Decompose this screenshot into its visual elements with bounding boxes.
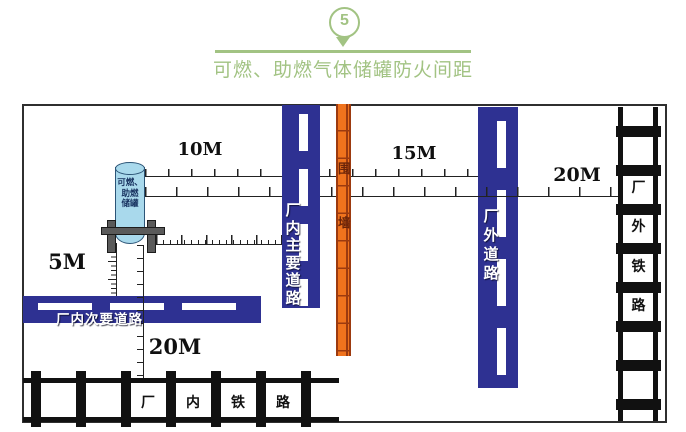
diagram-canvas: 5 可燃、助燃气体储罐防火间距 10M 15M 20M 5M 20M 可燃、 助… <box>0 0 686 432</box>
ruler-h2-ticks <box>145 187 618 196</box>
ruler-fine-line <box>156 244 282 245</box>
section-number-badge: 5 <box>329 7 360 38</box>
title-underline <box>215 50 471 53</box>
distance-label-20m-right: 20M <box>546 164 608 186</box>
external-railway-char: 铁 <box>616 256 661 276</box>
char: 道 <box>281 272 305 290</box>
external-railway-char: 路 <box>616 295 661 315</box>
distance-label-20m-bottom: 20M <box>146 334 204 359</box>
internal-main-road-label: 厂 内 主 要 道 路 <box>281 202 305 308</box>
char: 路 <box>281 290 305 308</box>
char: 要 <box>281 255 305 273</box>
storage-tank-label: 可燃、 助燃 储罐 <box>112 177 148 209</box>
storage-tank-top <box>115 162 145 175</box>
distance-label-10m: 10M <box>170 139 230 160</box>
internal-railway-char: 铁 <box>230 392 246 412</box>
badge-pointer-icon <box>336 37 350 47</box>
ruler-v1-line <box>116 243 117 297</box>
tank-stand-left-leg <box>107 220 116 253</box>
char: 路 <box>478 264 504 283</box>
internal-railway-char: 路 <box>275 392 291 412</box>
external-road-label: 厂 外 道 路 <box>478 207 504 283</box>
char: 主 <box>281 237 305 255</box>
distance-label-15m: 15M <box>384 143 444 164</box>
char: 厂 <box>478 207 504 226</box>
distance-label-5m: 5M <box>42 249 92 274</box>
tank-label-line3: 储罐 <box>112 198 148 209</box>
tank-stand-bar <box>101 227 165 235</box>
page-title: 可燃、助燃气体储罐防火间距 <box>0 55 686 82</box>
internal-secondary-road-label: 厂内次要道路 <box>56 308 216 328</box>
tank-label-line2: 助燃 <box>112 188 148 199</box>
internal-railway-char: 内 <box>185 392 201 412</box>
internal-railway-char: 厂 <box>140 392 156 412</box>
wall-label-char: 围 <box>338 158 349 177</box>
internal-railway-top-rail <box>23 378 339 383</box>
tank-label-line1: 可燃、 <box>112 177 148 188</box>
boundary-wall: 围 墙 <box>336 104 351 356</box>
internal-railway-bottom-rail <box>23 417 339 422</box>
external-railway-char: 外 <box>616 216 661 236</box>
tank-stand-right-leg <box>147 220 156 253</box>
char: 厂 <box>281 202 305 220</box>
wall-label-char: 墙 <box>338 212 349 231</box>
external-railway-char: 厂 <box>616 177 661 197</box>
char: 内 <box>281 220 305 238</box>
char: 外 <box>478 226 504 245</box>
char: 道 <box>478 245 504 264</box>
ruler-h2-line <box>145 196 618 197</box>
